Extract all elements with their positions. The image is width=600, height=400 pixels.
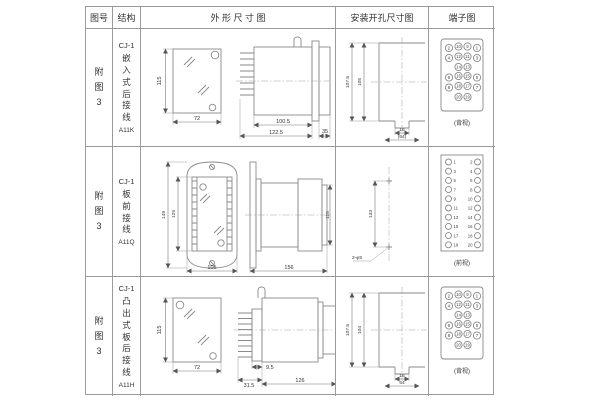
terminal-strip-left xyxy=(192,177,197,251)
svg-text:14: 14 xyxy=(456,312,461,317)
svg-text:7: 7 xyxy=(476,85,479,90)
svg-text:9: 9 xyxy=(454,196,457,201)
structure-label: 板前接线 xyxy=(121,189,132,237)
svg-text:9: 9 xyxy=(466,292,469,297)
col-header-figure: 图号 xyxy=(86,7,113,29)
figure-label: 附图3 xyxy=(93,314,105,360)
svg-text:17: 17 xyxy=(454,233,459,238)
hole-note-label: 2-φ5 xyxy=(352,255,362,261)
dim-label-hole-span: 133 xyxy=(368,209,374,217)
svg-text:1: 1 xyxy=(476,293,479,298)
terminal-drawing-a11q: 1234567891011121314151617181920 (前视) xyxy=(430,149,494,275)
dim-label-side-length: 156 xyxy=(284,265,293,271)
hanger-hook xyxy=(258,287,265,298)
outline-drawing-a11q: 149 125 105 156 115 xyxy=(142,149,335,275)
dim-label-slot-width: 16 xyxy=(399,127,405,133)
mounting-drawing-a11k: 107.5 105 16 (64) xyxy=(337,31,428,145)
hanger-hook xyxy=(294,37,301,47)
outline-cell-a11q: 149 125 105 156 115 xyxy=(141,147,336,277)
svg-text:7: 7 xyxy=(476,333,479,338)
svg-text:19: 19 xyxy=(465,94,470,99)
svg-text:12: 12 xyxy=(456,302,461,307)
svg-text:11: 11 xyxy=(465,54,470,59)
svg-text:19: 19 xyxy=(454,242,459,247)
dim-label-outer-height: 107.5 xyxy=(345,75,351,87)
svg-text:2: 2 xyxy=(470,159,473,164)
svg-text:2: 2 xyxy=(448,293,451,298)
svg-text:5: 5 xyxy=(476,323,479,328)
svg-text:6: 6 xyxy=(448,75,451,80)
terminal-pins xyxy=(238,309,252,361)
col-header-structure-label: 结构 xyxy=(117,11,135,24)
dim-label-gap-length: 9.5 xyxy=(266,365,274,371)
figure-cell-a11h: 附图3 xyxy=(86,277,113,396)
dim-label-outer-height: 149 xyxy=(161,210,167,218)
col-header-structure: 结构 xyxy=(113,7,141,29)
svg-text:13: 13 xyxy=(465,64,470,69)
figure-cell-a11k: 附图3 xyxy=(86,29,113,147)
svg-text:8: 8 xyxy=(470,187,473,192)
type-code-label: A11Q xyxy=(118,239,134,246)
model-label: CJ-1 xyxy=(119,41,135,50)
dim-label-pin-length: 31.5 xyxy=(243,383,254,389)
outline-drawing-a11k: 115 72 100.5 122.5 35 xyxy=(142,31,335,145)
mounting-cell-a11k: 107.5 105 16 (64) xyxy=(336,29,429,147)
dim-label-overall-width: 64 xyxy=(399,380,405,386)
dim-label-rear-depth: 35 xyxy=(321,129,327,135)
glass-mark xyxy=(184,309,209,345)
svg-text:4: 4 xyxy=(448,55,451,60)
view-caption: (前视) xyxy=(454,259,470,267)
terminal-strip-right xyxy=(227,177,232,251)
svg-text:14: 14 xyxy=(456,64,461,69)
drawing-sheet: 图号 结构 外 形 尺 寸 图 安装开孔尺寸图 端子图 附图3 CJ-1 嵌入式… xyxy=(0,0,600,400)
svg-text:5: 5 xyxy=(454,178,457,183)
dim-label-slot-width: 16 xyxy=(399,373,405,379)
col-header-terminal: 端子图 xyxy=(429,7,495,29)
figure-label: 附图3 xyxy=(93,65,105,111)
dim-label-front-width: 72 xyxy=(193,116,199,122)
mounting-cell-a11h: 107.5 104 16 64 xyxy=(336,277,429,396)
svg-text:7: 7 xyxy=(454,187,457,192)
svg-text:17: 17 xyxy=(465,331,470,336)
svg-text:15: 15 xyxy=(465,73,470,78)
glass-mark xyxy=(200,194,224,235)
svg-text:3: 3 xyxy=(476,55,479,60)
svg-text:16: 16 xyxy=(456,321,461,326)
side-view: 156 115 xyxy=(245,162,333,273)
outline-drawing-a11h: 115 72 9.5 31.5 xyxy=(142,279,335,395)
svg-text:5: 5 xyxy=(476,75,479,80)
dim-label-overall-width: (64) xyxy=(397,134,406,140)
terminal-circles: 2109141211314136161558181772019 xyxy=(445,42,480,100)
svg-text:16: 16 xyxy=(456,73,461,78)
col-header-terminal-label: 端子图 xyxy=(448,11,475,24)
svg-text:10: 10 xyxy=(456,44,461,49)
svg-text:3: 3 xyxy=(454,168,457,173)
svg-text:12: 12 xyxy=(468,205,473,210)
dim-label-inner-height: 104 xyxy=(357,325,363,333)
dim-label-front-width: 72 xyxy=(193,365,199,371)
svg-text:3: 3 xyxy=(476,303,479,308)
side-view: 100.5 122.5 35 xyxy=(236,37,333,139)
svg-text:11: 11 xyxy=(454,205,459,210)
terminal-circles: 1234567891011121314151617181920 xyxy=(446,159,481,248)
svg-text:1: 1 xyxy=(476,45,479,50)
structure-block: CJ-1 板前接线 A11Q xyxy=(118,177,134,247)
dim-label-outer-height: 107.5 xyxy=(345,323,351,335)
svg-text:11: 11 xyxy=(465,302,470,307)
col-header-outline-label: 外 形 尺 寸 图 xyxy=(210,11,265,24)
structure-label: 凸出式板后接线 xyxy=(121,296,132,379)
terminal-drawing-a11k: 2109141211314136161558181772019 (背视) xyxy=(430,31,494,145)
mounting-cell-a11q: 133 2-φ5 xyxy=(336,147,429,277)
svg-text:2: 2 xyxy=(448,45,451,50)
svg-text:17: 17 xyxy=(465,83,470,88)
svg-text:13: 13 xyxy=(454,214,459,219)
mounting-drawing-a11h: 107.5 104 16 64 xyxy=(337,279,428,395)
figure-cell-a11q: 附图3 xyxy=(86,147,113,277)
glass-mark xyxy=(184,57,209,95)
terminal-cell-a11h: 2109141211314136161558181772019 (背视) xyxy=(429,277,495,396)
front-view: 115 72 xyxy=(157,298,221,374)
svg-text:12: 12 xyxy=(456,54,461,59)
col-header-figure-label: 图号 xyxy=(90,11,108,24)
spec-table: 图号 结构 外 形 尺 寸 图 安装开孔尺寸图 端子图 附图3 CJ-1 嵌入式… xyxy=(85,6,494,395)
svg-text:20: 20 xyxy=(456,342,461,347)
type-code-label: A11H xyxy=(119,382,135,389)
svg-text:6: 6 xyxy=(470,178,473,183)
structure-cell-a11k: CJ-1 嵌入式后接线 A11K xyxy=(113,29,141,147)
dim-label-side-height: 115 xyxy=(325,210,331,218)
dim-label-front-width: 105 xyxy=(207,265,216,271)
dim-label-front-height: 115 xyxy=(157,76,163,85)
type-code-label: A11K xyxy=(119,127,134,134)
terminal-circles: 2109141211314136161558181772019 xyxy=(445,290,480,348)
figure-label: 附图3 xyxy=(93,189,105,235)
svg-text:4: 4 xyxy=(470,168,473,173)
outline-cell-a11h: 115 72 9.5 31.5 xyxy=(141,277,336,396)
svg-text:20: 20 xyxy=(468,242,473,247)
svg-text:18: 18 xyxy=(468,233,473,238)
front-view: 149 125 105 xyxy=(161,162,237,273)
svg-text:15: 15 xyxy=(454,224,459,229)
dim-label-inner-height: 105 xyxy=(357,77,363,85)
outline-cell-a11k: 115 72 100.5 122.5 35 xyxy=(141,29,336,147)
terminal-pins xyxy=(240,53,254,95)
dim-label-body-length: 100.5 xyxy=(276,119,290,125)
model-label: CJ-1 xyxy=(119,284,135,293)
mounting-drawing-a11q: 133 2-φ5 xyxy=(337,149,428,275)
dim-label-inner-height: 125 xyxy=(171,209,177,217)
svg-text:13: 13 xyxy=(465,312,470,317)
svg-text:8: 8 xyxy=(448,85,451,90)
structure-block: CJ-1 嵌入式后接线 A11K xyxy=(119,41,135,134)
svg-text:9: 9 xyxy=(466,44,469,49)
structure-cell-a11h: CJ-1 凸出式板后接线 A11H xyxy=(113,277,141,396)
svg-text:16: 16 xyxy=(468,224,473,229)
col-header-mounting-label: 安装开孔尺寸图 xyxy=(350,11,413,24)
col-header-outline: 外 形 尺 寸 图 xyxy=(141,7,336,29)
svg-text:6: 6 xyxy=(448,323,451,328)
svg-text:15: 15 xyxy=(465,321,470,326)
structure-label: 嵌入式后接线 xyxy=(121,53,132,124)
side-view: 9.5 31.5 126 xyxy=(234,287,335,389)
dim-label-front-height: 115 xyxy=(157,325,163,334)
svg-text:4: 4 xyxy=(448,303,451,308)
col-header-mounting: 安装开孔尺寸图 xyxy=(336,7,429,29)
front-view: 115 72 xyxy=(157,49,221,125)
dim-label-total-length: 122.5 xyxy=(269,130,283,136)
terminal-cell-a11k: 2109141211314136161558181772019 (背视) xyxy=(429,29,495,147)
dim-label-body-length: 126 xyxy=(295,378,304,384)
svg-text:14: 14 xyxy=(468,214,473,219)
view-caption: (背视) xyxy=(454,367,470,375)
svg-text:10: 10 xyxy=(468,196,473,201)
svg-text:19: 19 xyxy=(465,342,470,347)
structure-block: CJ-1 凸出式板后接线 A11H xyxy=(119,284,135,389)
view-caption: (背视) xyxy=(454,119,470,127)
structure-cell-a11q: CJ-1 板前接线 A11Q xyxy=(113,147,141,277)
terminal-drawing-a11h: 2109141211314136161558181772019 (背视) xyxy=(430,279,494,395)
svg-text:18: 18 xyxy=(456,83,461,88)
svg-text:20: 20 xyxy=(456,94,461,99)
svg-text:8: 8 xyxy=(448,333,451,338)
svg-text:10: 10 xyxy=(456,292,461,297)
svg-text:1: 1 xyxy=(454,159,457,164)
model-label: CJ-1 xyxy=(119,177,135,186)
svg-text:18: 18 xyxy=(456,331,461,336)
terminal-cell-a11q: 1234567891011121314151617181920 (前视) xyxy=(429,147,495,277)
